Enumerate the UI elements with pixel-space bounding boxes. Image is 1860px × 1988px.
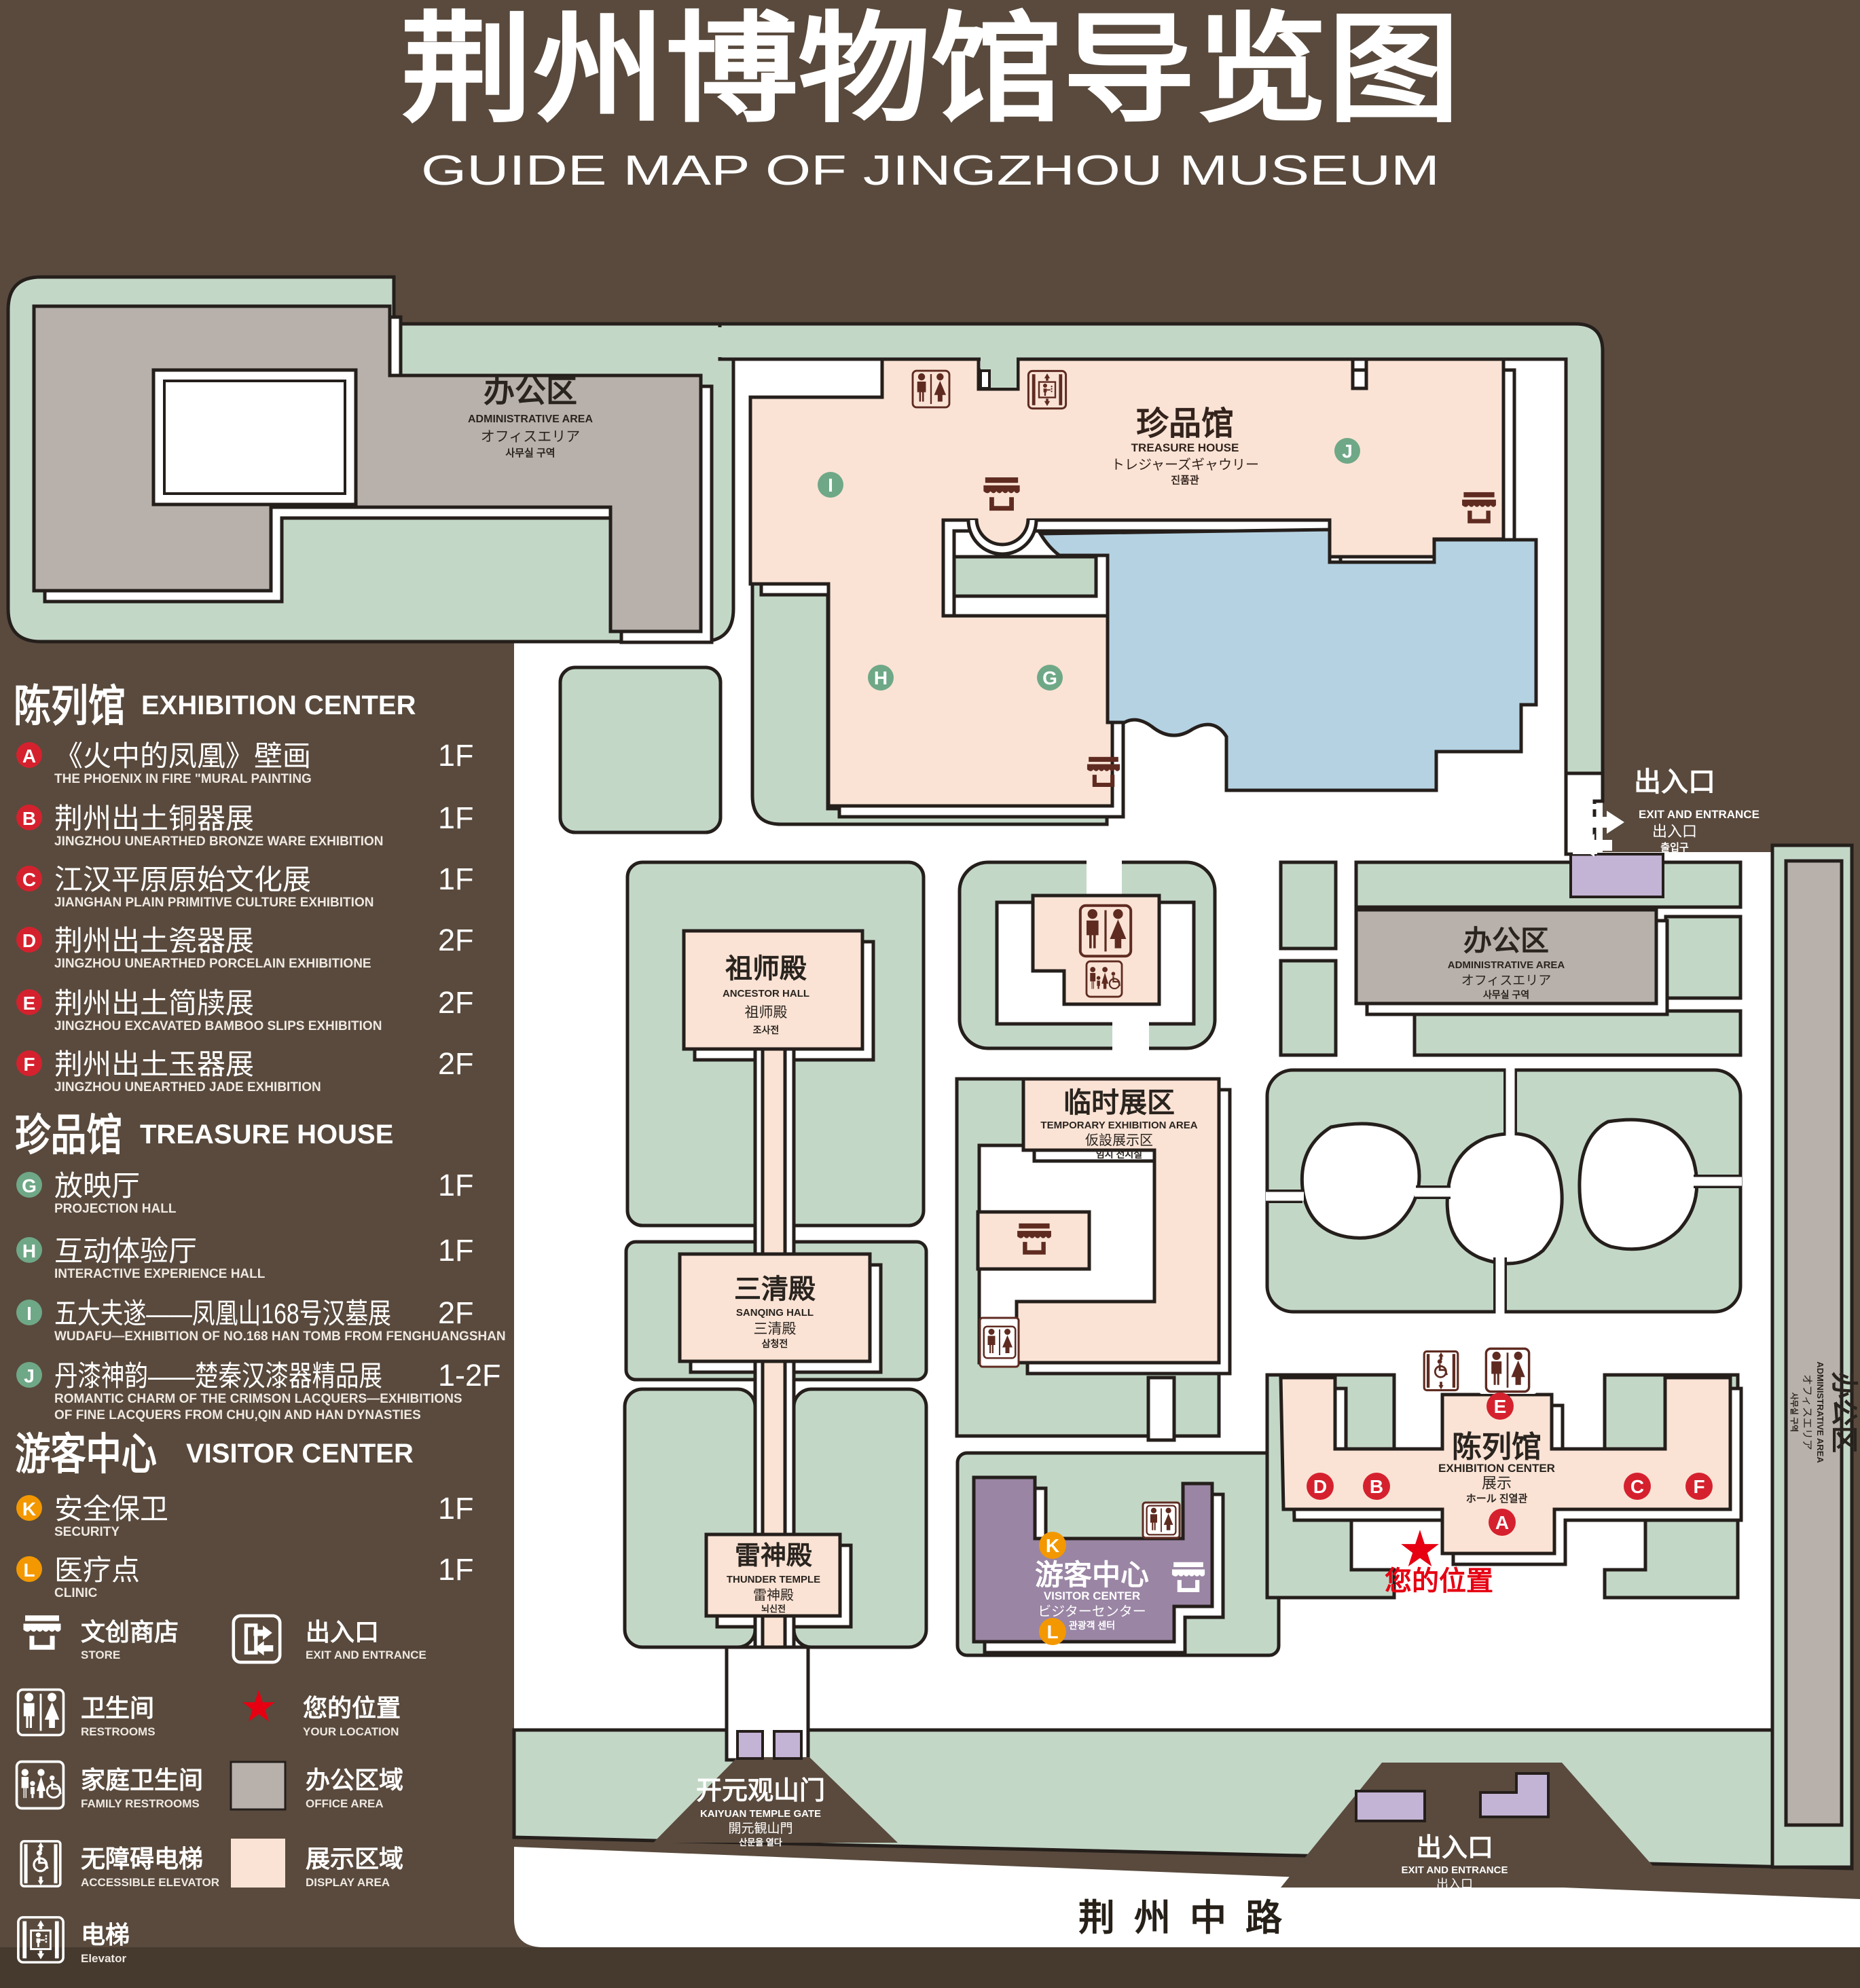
svg-text:J: J [1342,441,1353,462]
svg-text:オフィスエリア: オフィスエリア [1801,1374,1812,1450]
svg-text:临时展区: 临时展区 [1063,1087,1175,1118]
svg-text:출입구: 출입구 [1442,1892,1467,1902]
svg-text:출입구: 출입구 [1660,842,1689,853]
svg-text:사무실 구역: 사무실 구역 [1483,989,1529,1000]
svg-text:トレジャーズギャウリー: トレジャーズギャウリー [1111,457,1259,473]
svg-text:F: F [1693,1476,1704,1497]
svg-text:1F: 1F [438,1233,474,1268]
svg-text:F: F [23,1054,35,1075]
svg-text:1F: 1F [438,862,474,896]
svg-text:荆州出土玉器展: 荆州出土玉器展 [54,1048,254,1080]
svg-text:SECURITY: SECURITY [54,1525,120,1539]
svg-text:三清殿: 三清殿 [734,1274,816,1304]
svg-text:荆州出土铜器展: 荆州出土铜器展 [54,803,254,834]
svg-text:VISITOR CENTER: VISITOR CENTER [186,1439,414,1469]
svg-text:1F: 1F [438,1168,474,1202]
svg-text:陈列馆: 陈列馆 [1452,1431,1542,1464]
svg-text:PROJECTION HALL: PROJECTION HALL [54,1202,177,1216]
svg-text:STORE: STORE [81,1649,120,1661]
svg-text:조사전: 조사전 [753,1025,780,1035]
svg-text:JINGZHOU EXCAVATED BAMBOO SLIP: JINGZHOU EXCAVATED BAMBOO SLIPS EXHIBITI… [54,1019,382,1033]
svg-text:ANCESTOR HALL: ANCESTOR HALL [723,988,809,999]
svg-text:OFFICE AREA: OFFICE AREA [306,1797,384,1810]
svg-text:荆州博物馆导览图: 荆州博物馆导览图 [401,3,1460,136]
svg-text:出入口: 出入口 [1634,767,1715,797]
svg-text:安全保卫: 安全保卫 [54,1493,168,1525]
svg-text:INTERACTIVE EXPERIENCE HALL: INTERACTIVE EXPERIENCE HALL [54,1267,266,1281]
svg-text:珍品馆: 珍品馆 [15,1111,122,1160]
svg-text:祖师殿: 祖师殿 [745,1005,788,1020]
svg-text:J: J [24,1365,35,1386]
svg-text:B: B [1370,1476,1383,1497]
svg-text:1-2F: 1-2F [438,1358,501,1393]
svg-text:FAMILY RESTROOMS: FAMILY RESTROOMS [81,1797,200,1810]
svg-text:办公区: 办公区 [484,373,577,409]
svg-text:C: C [22,869,36,890]
svg-text:ADMINISTRATIVE AREA: ADMINISTRATIVE AREA [1815,1361,1825,1463]
svg-text:THUNDER TEMPLE: THUNDER TEMPLE [727,1574,820,1585]
svg-text:사무실 구역: 사무실 구역 [1789,1393,1800,1433]
svg-text:C: C [1630,1476,1644,1497]
svg-text:뇌신전: 뇌신전 [761,1604,786,1614]
svg-text:2F: 2F [438,923,474,957]
svg-text:ビジターセンター: ビジターセンター [1038,1604,1146,1619]
svg-text:E: E [23,993,36,1014]
svg-text:K: K [22,1498,36,1520]
svg-text:GUIDE MAP OF JINGZHOU MUSEUM: GUIDE MAP OF JINGZHOU MUSEUM [421,147,1440,194]
svg-text:文创商店: 文创商店 [81,1618,179,1646]
svg-text:CLINIC: CLINIC [54,1586,98,1600]
svg-text:仮設展示区: 仮設展示区 [1085,1133,1153,1148]
svg-text:雷神殿: 雷神殿 [753,1587,794,1603]
svg-text:G: G [22,1175,37,1196]
svg-text:JINGZHOU UNEARTHED JADE EXHIBI: JINGZHOU UNEARTHED JADE EXHIBITION [54,1080,321,1094]
svg-text:EXIT AND ENTRANCE: EXIT AND ENTRANCE [1402,1864,1508,1876]
svg-text:ホール 진열관: ホール 진열관 [1466,1493,1528,1505]
svg-text:出入口: 出入口 [1436,1877,1473,1891]
svg-text:VISITOR CENTER: VISITOR CENTER [1044,1589,1140,1602]
svg-text:1F: 1F [438,1491,474,1526]
svg-text:办公区域: 办公区域 [306,1766,403,1794]
svg-text:ROMANTIC CHARM OF THE CRIMSON: ROMANTIC CHARM OF THE CRIMSON LACQUERS—E… [54,1392,462,1406]
svg-text:A: A [1495,1512,1509,1533]
svg-text:EXHIBITION CENTER: EXHIBITION CENTER [1438,1462,1555,1475]
svg-text:관광객 센터: 관광객 센터 [1069,1620,1115,1631]
svg-text:D: D [1313,1476,1327,1497]
svg-text:TEMPORARY EXHIBITION AREA: TEMPORARY EXHIBITION AREA [1040,1120,1197,1131]
svg-text:出入口: 出入口 [306,1618,379,1646]
svg-text:オフィスエリア: オフィスエリア [481,429,581,445]
svg-text:オフィスエリア: オフィスエリア [1461,974,1552,988]
svg-text:荆州出土简牍展: 荆州出土简牍展 [54,987,254,1019]
svg-text:TREASURE HOUSE: TREASURE HOUSE [1131,441,1239,454]
svg-text:出入口: 出入口 [1416,1834,1493,1862]
svg-text:EXIT AND ENTRANCE: EXIT AND ENTRANCE [306,1649,426,1661]
svg-text:JIANGHAN PLAIN PRIMITIVE CULTU: JIANGHAN PLAIN PRIMITIVE CULTURE EXHIBIT… [54,896,373,910]
svg-text:展示: 展示 [1482,1475,1512,1492]
svg-text:1F: 1F [438,800,474,835]
svg-text:祖师殿: 祖师殿 [725,954,807,984]
svg-text:江汉平原原始文化展: 江汉平原原始文化展 [54,864,311,896]
svg-text:EXHIBITION CENTER: EXHIBITION CENTER [141,691,416,720]
svg-text:游客中心: 游客中心 [15,1430,157,1479]
svg-text:办公区: 办公区 [1463,925,1549,957]
svg-text:丹漆神韵——楚秦汉漆器精品展: 丹漆神韵——楚秦汉漆器精品展 [54,1360,382,1392]
svg-text:游客中心: 游客中心 [1035,1559,1149,1591]
svg-text:办公区: 办公区 [1829,1372,1859,1453]
svg-text:《火中的凤凰》壁画: 《火中的凤凰》壁画 [54,740,311,772]
svg-text:開元観山門: 開元観山門 [728,1821,792,1836]
svg-text:Elevator: Elevator [81,1952,126,1965]
svg-text:ACCESSIBLE ELEVATOR: ACCESSIBLE ELEVATOR [81,1876,219,1889]
svg-text:出入口: 出入口 [1652,823,1697,840]
svg-text:三清殿: 三清殿 [754,1321,797,1337]
svg-text:珍品馆: 珍品馆 [1136,406,1234,442]
svg-text:您的位置: 您的位置 [1385,1566,1493,1596]
svg-text:B: B [22,808,36,829]
svg-text:YOUR LOCATION: YOUR LOCATION [303,1725,399,1738]
svg-text:I: I [26,1303,32,1324]
svg-text:진품관: 진품관 [1171,475,1199,486]
svg-text:THE PHOENIX IN FIRE "MURAL PAI: THE PHOENIX IN FIRE "MURAL PAINTING [54,772,312,786]
svg-text:互动体验厅: 互动体验厅 [54,1235,197,1267]
svg-text:임시 전시실: 임시 전시실 [1096,1149,1142,1160]
svg-text:K: K [1046,1535,1059,1556]
svg-text:家庭卫生间: 家庭卫生间 [81,1766,203,1794]
svg-text:2F: 2F [438,1295,474,1330]
svg-text:OF FINE LACQUERS FROM CHU,QIN: OF FINE LACQUERS FROM CHU,QIN AND HAN DY… [54,1408,421,1422]
svg-text:D: D [22,930,36,951]
svg-text:G: G [1042,667,1057,688]
svg-text:JINGZHOU UNEARTHED PORCELAIN E: JINGZHOU UNEARTHED PORCELAIN EXHIBITIONE [54,957,371,971]
svg-text:1F: 1F [438,1552,474,1587]
svg-text:사무실 구역: 사무실 구역 [505,447,555,459]
svg-text:2F: 2F [438,1046,474,1081]
svg-text:五大夫遂——凤凰山168号汉墓展: 五大夫遂——凤凰山168号汉墓展 [54,1297,391,1329]
svg-text:DISPLAY AREA: DISPLAY AREA [306,1876,390,1889]
svg-text:2F: 2F [438,985,474,1020]
svg-text:开元观山门: 开元观山门 [696,1777,825,1805]
svg-text:SANQING HALL: SANQING HALL [736,1307,814,1319]
svg-text:ADMINISTRATIVE AREA: ADMINISTRATIVE AREA [468,413,593,425]
svg-text:EXIT AND ENTRANCE: EXIT AND ENTRANCE [1639,808,1759,821]
svg-text:산문을 열다: 산문을 열다 [739,1837,782,1847]
svg-text:放映厅: 放映厅 [54,1170,140,1202]
svg-text:E: E [1494,1396,1507,1417]
svg-text:陈列馆: 陈列馆 [14,682,126,731]
svg-text:您的位置: 您的位置 [303,1694,401,1722]
svg-text:电梯: 电梯 [81,1921,130,1949]
svg-text:荆州中路: 荆州中路 [1078,1898,1301,1938]
svg-text:L: L [1046,1621,1058,1642]
svg-text:JINGZHOU UNEARTHED BRONZE WARE: JINGZHOU UNEARTHED BRONZE WARE EXHIBITIO… [54,834,384,849]
svg-text:TREASURE HOUSE: TREASURE HOUSE [140,1120,393,1149]
svg-text:I: I [828,475,833,496]
svg-text:RESTROOMS: RESTROOMS [81,1725,156,1738]
svg-text:삼청전: 삼청전 [762,1338,788,1349]
svg-text:1F: 1F [438,738,474,773]
svg-text:雷神殿: 雷神殿 [735,1542,812,1570]
svg-text:KAIYUAN TEMPLE GATE: KAIYUAN TEMPLE GATE [700,1808,821,1820]
svg-text:WUDAFU—EXHIBITION OF NO.168 HA: WUDAFU—EXHIBITION OF NO.168 HAN TOMB FRO… [54,1329,506,1344]
svg-text:L: L [23,1560,35,1581]
svg-text:ADMINISTRATIVE AREA: ADMINISTRATIVE AREA [1448,959,1565,971]
svg-text:无障碍电梯: 无障碍电梯 [81,1845,203,1873]
svg-text:荆州出土瓷器展: 荆州出土瓷器展 [54,925,254,957]
svg-text:A: A [22,745,36,767]
svg-text:医疗点: 医疗点 [54,1554,140,1586]
svg-text:H: H [22,1240,36,1262]
svg-text:H: H [874,667,888,688]
svg-text:展示区域: 展示区域 [306,1845,403,1873]
svg-text:卫生间: 卫生间 [81,1694,154,1722]
